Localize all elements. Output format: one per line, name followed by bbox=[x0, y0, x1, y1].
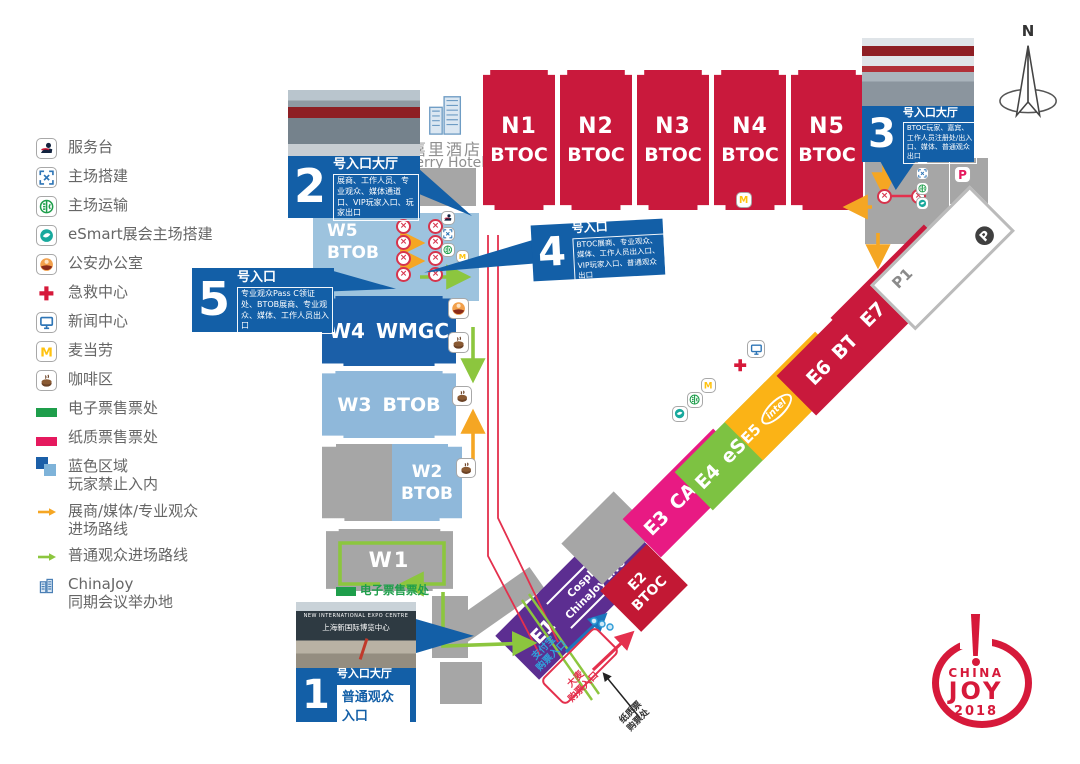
entrance-3-photo bbox=[862, 38, 974, 108]
mcdonalds-icon: M bbox=[701, 378, 716, 393]
entrance-gate-label: 普通观众入口 bbox=[337, 685, 410, 725]
ticket-gate-icon: × bbox=[396, 235, 411, 250]
entrance-title: 号入口大厅 bbox=[337, 665, 410, 681]
esmart-setup-icon bbox=[916, 197, 929, 210]
logo-joy: JOY bbox=[936, 677, 1016, 705]
eticket-booth-swatch bbox=[336, 587, 356, 596]
coffee-icon bbox=[456, 458, 476, 478]
compass-north-label: N bbox=[991, 22, 1065, 40]
venue-transport-icon bbox=[441, 243, 455, 257]
entrance-2-photo bbox=[288, 90, 420, 156]
entrance-desc: 展商、工作人员、专业观众、媒体通道口、VIP玩家入口、玩家出口 bbox=[333, 174, 419, 221]
entrance-1-photo: NEW INTERNATIONAL EXPO CENTRE 上海新国际博览中心 bbox=[296, 602, 416, 668]
entrance-number: 4 bbox=[537, 235, 567, 270]
coffee-icon bbox=[448, 332, 469, 353]
parking-badge-icon: P bbox=[954, 166, 971, 183]
logo-year: 2018 bbox=[936, 704, 1016, 719]
coffee-icon bbox=[452, 386, 472, 406]
ticket-gate-icon: × bbox=[396, 267, 411, 282]
entrance-title: 号入口大厅 bbox=[903, 104, 977, 120]
entrance-desc: BTOC展商、专业观众、媒体、工作人员出入口、VIP玩家入口、普通观众出口 bbox=[572, 234, 666, 283]
first-aid-icon bbox=[731, 356, 749, 374]
ticket-gate-icon: × bbox=[396, 251, 411, 266]
svg-text:M: M bbox=[739, 196, 748, 206]
venue-transport-icon bbox=[916, 182, 929, 195]
logo-exclamation-dot bbox=[972, 658, 980, 666]
venue-setup-icon bbox=[916, 167, 929, 180]
entrance-2-callout: 2 号入口大厅 展商、工作人员、专业观众、媒体通道口、VIP玩家入口、玩家出口 bbox=[288, 156, 420, 218]
svg-text:M: M bbox=[704, 382, 713, 391]
service-desk-icon bbox=[441, 211, 455, 225]
north-arrow-icon bbox=[995, 40, 1065, 132]
pro-visitor-route bbox=[403, 160, 884, 460]
entrance-title: 号入口 bbox=[571, 215, 664, 237]
entrance-number: 1 bbox=[302, 678, 330, 712]
entrance-title: 号入口大厅 bbox=[333, 153, 419, 172]
entrance-desc: BTOC玩家、嘉宾、工作人员注册处/出入口、媒体、普通观众出口 bbox=[903, 122, 977, 164]
venue-setup-icon bbox=[441, 227, 455, 241]
entrance-number: 3 bbox=[868, 117, 896, 151]
entrance-1-callout: 1 号入口大厅 普通观众入口 bbox=[296, 668, 416, 722]
entrance-5-callout: 5 号入口 专业观众Pass C领证处、BTOB展商、专业观众、媒体、工作人员出… bbox=[192, 268, 334, 332]
entrance-title: 号入口 bbox=[237, 266, 333, 285]
ticket-gate-icon: × bbox=[877, 189, 892, 204]
chinajoy-venue-map: 服务台 主场搭建 主场运输 eSmart展会主场搭建 公安办公室 急救中心 新闻… bbox=[0, 0, 1080, 764]
entrance-desc: 专业观众Pass C领证处、BTOB展商、专业观众、媒体、工作人员出入口 bbox=[237, 287, 333, 334]
eticket-booth-label: 电子票售票处 bbox=[360, 582, 429, 598]
mcdonalds-icon: M bbox=[736, 192, 752, 208]
police-office-icon bbox=[448, 298, 469, 319]
venue-transport-icon bbox=[687, 392, 703, 408]
chinajoy-2018-logo: CHINA JOY 2018 bbox=[926, 610, 1056, 750]
entrance-3-callout: 3 号入口大厅 BTOC玩家、嘉宾、工作人员注册处/出入口、媒体、普通观众出口 bbox=[862, 106, 974, 162]
esmart-setup-icon bbox=[672, 406, 688, 422]
svg-text:M: M bbox=[459, 252, 466, 261]
entrance-number: 5 bbox=[198, 280, 230, 319]
expo-centre-caption-en: NEW INTERNATIONAL EXPO CENTRE bbox=[296, 613, 416, 619]
ticket-gate-icon: × bbox=[396, 219, 411, 234]
news-center-icon bbox=[747, 340, 765, 358]
compass: N bbox=[995, 22, 1065, 134]
entrance-4-callout: 4 号入口 BTOC展商、专业观众、媒体、工作人员出入口、VIP玩家入口、普通观… bbox=[531, 219, 666, 282]
entrance-number: 2 bbox=[294, 167, 326, 206]
expo-centre-caption-cn: 上海新国际博览中心 bbox=[296, 622, 416, 633]
